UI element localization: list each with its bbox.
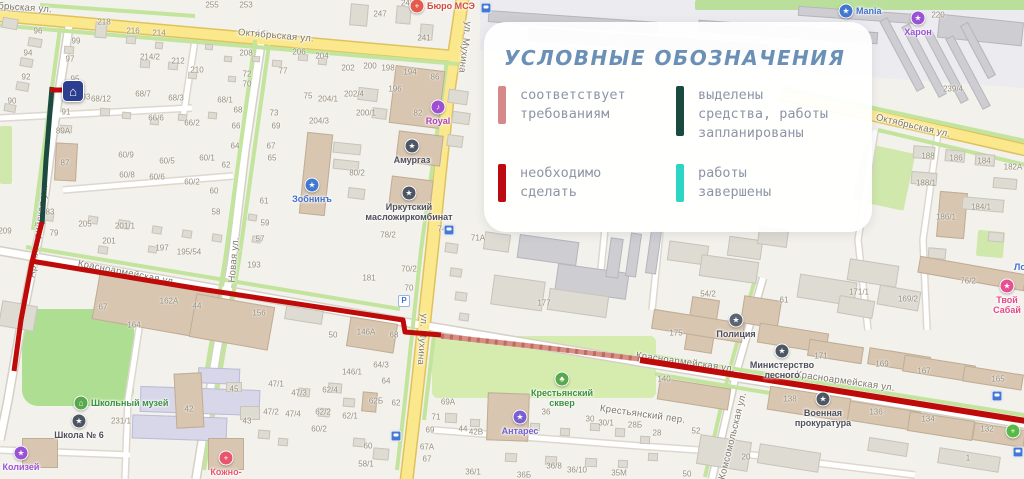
transit-stop-icon[interactable] bbox=[444, 225, 455, 236]
park-label-krestyansky-skver[interactable]: ♣ bbox=[555, 372, 570, 387]
bus-icon bbox=[394, 434, 399, 437]
poi-kozhno-clinic-label: Кожно- bbox=[210, 467, 241, 477]
poi-mania-label: Mania bbox=[856, 6, 882, 16]
bus-icon bbox=[447, 228, 452, 231]
poi-school-6[interactable]: ★ bbox=[72, 414, 87, 429]
legend-todo-label: необходимо сделать bbox=[520, 164, 601, 202]
bus-icon bbox=[484, 6, 489, 9]
poi-byuro-mse-label: Бюро МСЭ bbox=[427, 1, 475, 11]
poi-amurgaz[interactable]: ★ bbox=[405, 139, 420, 154]
legend-todo-swatch bbox=[498, 164, 506, 202]
poi-zobnin[interactable]: ★ bbox=[305, 178, 320, 193]
park-label-krestyansky-skver-label: Крестьянский сквер bbox=[531, 388, 593, 408]
bus-icon bbox=[1016, 450, 1021, 453]
poi-royal-label: Royal bbox=[426, 116, 451, 126]
legend-item: работы завершены bbox=[676, 164, 771, 202]
bus-icon bbox=[995, 394, 1000, 397]
poi-politsiya-label: Полиция bbox=[716, 329, 755, 339]
poi-ministerstvo-lesnogo-label: Министерство лесного bbox=[750, 360, 814, 380]
legend-completed-swatch bbox=[676, 164, 684, 202]
poi-tvoy-sabay[interactable]: ★ bbox=[1000, 279, 1015, 294]
transit-stop-icon[interactable] bbox=[992, 391, 1003, 402]
transit-stop-icon[interactable] bbox=[481, 3, 492, 14]
poi-mania[interactable]: ★ bbox=[839, 4, 854, 19]
poi-ministerstvo-lesnogo[interactable]: ★ bbox=[775, 344, 790, 359]
poi-voennaya-prokuratura-label: Военная прокуратура bbox=[795, 408, 851, 428]
poi-voennaya-prokuratura[interactable]: ★ bbox=[816, 392, 831, 407]
poi-royal[interactable]: ♪ bbox=[431, 100, 446, 115]
poi-antares-label: Антарес bbox=[502, 426, 539, 436]
poi-kolizey[interactable]: ★ bbox=[14, 446, 29, 461]
legend-title: УСЛОВНЫЕ ОБОЗНАЧЕНИЯ bbox=[504, 46, 845, 70]
poi-politsiya[interactable]: ★ bbox=[729, 313, 744, 328]
legend-completed-label: работы завершены bbox=[698, 164, 771, 202]
legend-meets-requirements-label: соответствует требованиям bbox=[520, 86, 626, 124]
transit-stop-icon[interactable] bbox=[391, 431, 402, 442]
poi-antares[interactable]: ★ bbox=[513, 410, 528, 425]
poi-school-museum-label: Школьный музей bbox=[91, 398, 168, 408]
poi-kharon-label: Харон bbox=[904, 27, 931, 37]
legend-panel: УСЛОВНЫЕ ОБОЗНАЧЕНИЯ соответствует требо… bbox=[484, 22, 872, 232]
poi-kolizey-label: Колизей bbox=[3, 462, 40, 472]
poi-amurgaz-label: Амургаз bbox=[394, 155, 431, 165]
poi-pharmacy[interactable]: + bbox=[1006, 424, 1021, 439]
legend-item: соответствует требованиям bbox=[498, 86, 626, 124]
map-canvas[interactable]: 222220969492909997959368/129189А87218216… bbox=[0, 0, 1024, 479]
legend-funds-allocated-label: выделены средства, работы запланированы bbox=[698, 86, 828, 143]
poi-byuro-mse[interactable]: + bbox=[410, 0, 425, 14]
poi-tvoy-sabay-label: Твой Сабай bbox=[993, 295, 1021, 315]
transit-stop-icon[interactable] bbox=[1013, 447, 1024, 458]
legend-meets-requirements-swatch bbox=[498, 86, 506, 124]
poi-school-6-label: Школа № 6 bbox=[54, 430, 103, 440]
poi-kharon[interactable]: ★ bbox=[911, 11, 926, 26]
label-lo-partial: Ло bbox=[1014, 262, 1024, 272]
legend-item: выделены средства, работы запланированы bbox=[676, 86, 828, 143]
poi-school-museum[interactable]: ⌂ bbox=[74, 396, 89, 411]
poi-maslozhirkombinat-label: Иркутский масложиркомбинат bbox=[365, 202, 452, 222]
legend-item: необходимо сделать bbox=[498, 164, 601, 202]
poi-maslozhirkombinat[interactable]: ★ bbox=[402, 186, 417, 201]
poi-kozhno-clinic[interactable]: + bbox=[219, 451, 234, 466]
parking-icon[interactable]: P bbox=[398, 295, 410, 307]
legend-funds-allocated-swatch bbox=[676, 86, 684, 136]
poi-zobnin-label: Зобнинъ bbox=[292, 194, 332, 204]
home-marker[interactable]: ⌂ bbox=[62, 80, 84, 102]
